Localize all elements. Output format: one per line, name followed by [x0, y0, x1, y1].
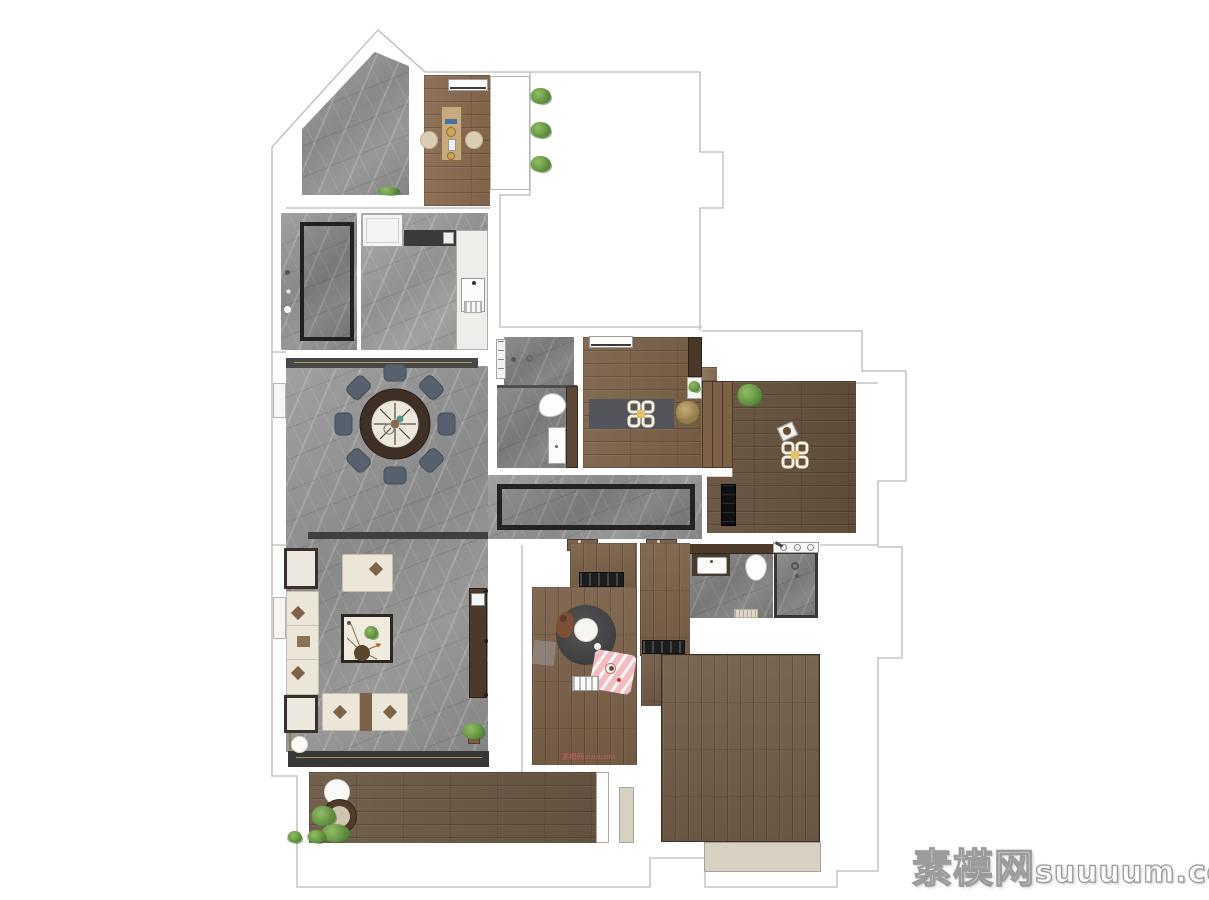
teddy-head: [560, 615, 567, 622]
teapot-icon: [446, 127, 456, 137]
bathroom-counter-band: [690, 544, 774, 554]
table-plant-icon: [365, 626, 378, 639]
ceiling-light-icon: [781, 441, 809, 469]
shower-head-icon: [791, 562, 799, 570]
inline-watermark: 素模网suuuum: [562, 752, 616, 762]
foyer-rug: [300, 222, 354, 341]
bedroom-bottom-floor: [661, 654, 820, 842]
window-bay: [273, 383, 286, 418]
toy-shelf: [572, 676, 599, 691]
hallway-rug: [497, 484, 695, 530]
study-window: [589, 336, 633, 348]
shower-head-icon: [526, 355, 533, 362]
window-bay: [273, 597, 286, 639]
bath-cabinet: [566, 386, 578, 468]
void-shadow: [532, 640, 556, 666]
study-window-line: [591, 344, 631, 346]
fridge-inner-line: [366, 218, 399, 243]
niche-shelves: [498, 341, 504, 377]
bay-window: [704, 842, 821, 872]
faucet-icon: [710, 560, 713, 563]
living-plant-icon: [463, 723, 485, 739]
floor-cushion-left: [420, 131, 438, 149]
coffee-table-decor: [341, 614, 393, 663]
faucet-icon: [472, 281, 476, 285]
wall-fixture-dot: [286, 289, 291, 294]
side-table-bottom-left: [284, 695, 318, 733]
ceiling-beam: [308, 532, 490, 539]
shower-drain-icon: [795, 574, 799, 578]
plant-icon: [531, 122, 551, 138]
terrace-plant-icon: [378, 187, 400, 195]
plant-icon: [531, 88, 551, 104]
tea-room-window: [448, 79, 488, 91]
shower-control-icon: [511, 357, 516, 362]
shelf-ring-icon: [807, 544, 814, 551]
round-dining-table: [330, 359, 460, 489]
balcony-plant-icon: [308, 830, 326, 843]
wall-fixture-dot: [285, 270, 290, 275]
tv-screen: [471, 593, 485, 606]
site-watermark: 素模网suuuum.com: [912, 836, 1209, 894]
bedroom-right-wardrobe: [702, 381, 733, 468]
living-bottom-wall: [288, 751, 489, 767]
wardrobe-divider: [712, 382, 713, 467]
outside-plant-icon: [288, 831, 302, 843]
shelf-ring-icon: [794, 544, 801, 551]
balcony-door-panel: [596, 772, 609, 843]
sofa-seam: [287, 625, 318, 626]
floor-cushion-right: [465, 131, 483, 149]
tea-bowl-icon: [447, 152, 455, 160]
side-table-top-left: [284, 548, 318, 589]
bedroom-bottom-entry-floor: [641, 654, 663, 706]
sofa-seam: [287, 659, 318, 660]
bedroom-plant-icon: [738, 384, 762, 406]
toy-dot: [617, 678, 621, 682]
tea-tray: [445, 119, 457, 124]
tea-room-window-line: [450, 87, 486, 89]
shower-stall: [774, 551, 818, 618]
counter-appliance: [443, 232, 454, 244]
kids-pouf: [574, 618, 598, 642]
bath-mat: [734, 609, 758, 618]
plant-icon: [531, 156, 551, 172]
balcony-plant-icon: [312, 806, 336, 826]
tea-cups: [448, 139, 456, 151]
study-wardrobe: [688, 337, 702, 377]
sofa-console: [360, 693, 372, 731]
floor-plan: 素模网suuuum 素模网suuuum.com: [0, 0, 1209, 900]
wardrobe-divider: [722, 382, 723, 467]
chair-cushion: [783, 427, 791, 435]
watermark-cn: 素模网: [912, 846, 1035, 892]
wall-fixture-dot: [284, 306, 291, 313]
drainboard: [464, 301, 482, 313]
ac-unit: [721, 484, 736, 526]
sofa-cushion: [297, 636, 310, 647]
kids-wardrobe: [579, 572, 624, 587]
floor-lamp: [291, 736, 308, 753]
console-knob: [484, 589, 488, 593]
console-knob: [484, 639, 488, 643]
ceiling-light-icon: [627, 400, 655, 428]
hall-closet: [642, 640, 685, 654]
console-knob: [484, 693, 488, 697]
gold-trim-line: [296, 757, 482, 758]
sofa-top: [342, 554, 393, 592]
toy-center: [609, 666, 614, 671]
balcony-side-panel: [619, 787, 634, 843]
planter-strip: [490, 76, 530, 190]
shelf-plant-icon: [689, 381, 700, 392]
watermark-en: suuuum.com: [1035, 855, 1209, 890]
balcony-plant-icon: [322, 824, 350, 842]
vanity-faucet-icon: [555, 445, 558, 448]
